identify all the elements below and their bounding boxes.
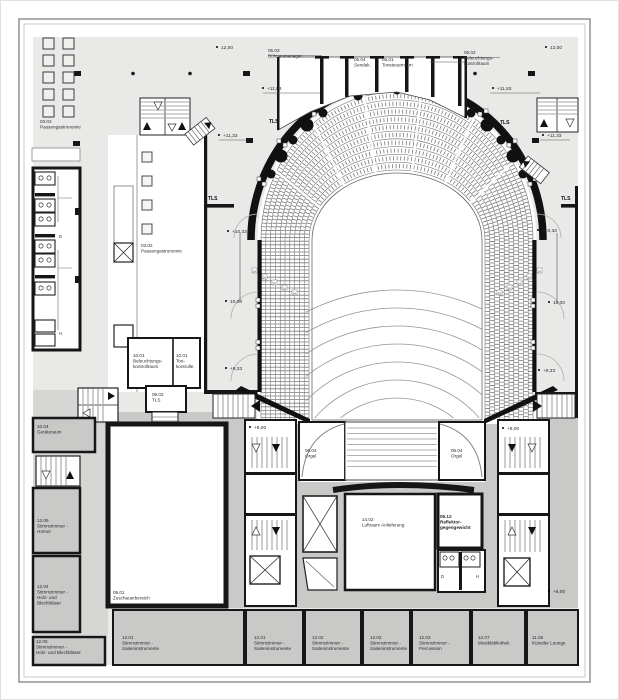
elevator-shaft-left: [250, 556, 280, 584]
row-number: 24: [498, 291, 502, 295]
tls-marker-left: TLS: [208, 196, 218, 202]
level-10-00-right: 10,00: [553, 300, 565, 306]
room-label-06-04-right: 06.04Orgel: [451, 448, 463, 458]
row-number: 24: [528, 275, 532, 279]
level-8-00-left: +8,00: [254, 425, 266, 431]
stair-lower-right: [533, 394, 575, 418]
level-12-00-left: 12,00: [221, 45, 233, 51]
level-10-33-right: +10,33: [542, 228, 557, 234]
level-9-33-right: +9,33: [543, 368, 555, 374]
elevator-tall: [303, 496, 337, 552]
elevator-foyer: [114, 243, 133, 262]
stair-top-left: [140, 98, 190, 135]
level-9-33-left: +9,33: [230, 366, 242, 372]
stair-top-right: [537, 98, 578, 132]
stair-lower-left: [213, 394, 260, 418]
level-12-00-right: 12,00: [550, 45, 562, 51]
level-10-33-left: +10,33: [232, 229, 247, 235]
wc-right-h: H: [476, 574, 479, 579]
luftraum-room: [345, 494, 435, 590]
stage-shell: [345, 422, 439, 480]
shaft-left: [245, 420, 296, 606]
row-number: 24: [273, 281, 277, 285]
stair-left-column: [36, 456, 80, 486]
level-11-33-left: +11,33: [223, 133, 238, 139]
center-bottom-block: D H: [245, 420, 549, 606]
row-number: 24: [508, 286, 512, 290]
tls-marker-right: TLS: [561, 196, 571, 202]
foyer-counter: [32, 148, 80, 161]
elevator-shaft-right: [504, 558, 530, 586]
floor-plan-drawing: D H: [0, 0, 619, 700]
tls-marker-top-right: TLS: [500, 120, 510, 126]
shaft-right: [498, 420, 549, 606]
bottom-room-strip: [113, 610, 578, 665]
row-number: 24: [518, 281, 522, 285]
floor-plan-page: D H: [0, 0, 619, 700]
row-number: 24: [538, 269, 542, 273]
wc-damen-label: D: [59, 234, 62, 239]
tls-marker-top-left: TLS: [269, 119, 279, 125]
zuschauerbereich-void: [108, 424, 226, 606]
row-number: 24: [263, 275, 267, 279]
toilet-block-left: D H: [33, 168, 80, 350]
wc-right-d: D: [441, 574, 444, 579]
level-11-83-left: +11,83: [267, 86, 282, 92]
toilet-block-right: D H: [438, 550, 485, 592]
level-8-00-right: +8,00: [507, 426, 519, 432]
hall-inner-void: [312, 173, 482, 420]
level-11-33-right: +11,33: [547, 133, 562, 139]
room-label-06-04-left: 06.04Orgel: [305, 448, 317, 458]
row-number: 24: [253, 269, 257, 273]
wc-herren-label: H: [59, 331, 62, 336]
level-8-00-bottom-right: +8,00: [553, 589, 565, 595]
level-10-00-left: 10,00: [230, 299, 242, 305]
row-number: 24: [283, 286, 287, 290]
level-11-83-right: +11,83: [497, 86, 512, 92]
row-number: 24: [293, 291, 297, 295]
